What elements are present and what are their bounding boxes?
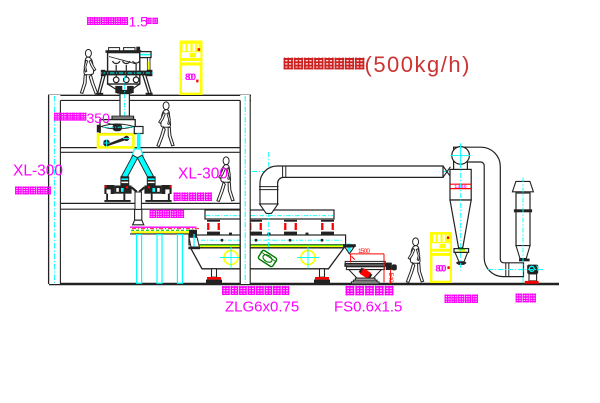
svg-text:350: 350	[87, 110, 111, 126]
svg-text:1.5: 1.5	[129, 14, 149, 30]
svg-text:ZLG6x0.75: ZLG6x0.75	[225, 299, 299, 316]
svg-text:540: 540	[387, 273, 394, 283]
svg-text:800: 800	[185, 72, 196, 83]
svg-text:1500: 1500	[358, 248, 370, 255]
svg-text:800: 800	[435, 264, 446, 275]
svg-text:XL-300: XL-300	[178, 166, 228, 183]
svg-text:XL-300: XL-300	[13, 163, 63, 180]
svg-text:(500kg/h): (500kg/h)	[365, 52, 471, 77]
svg-text:FS0.6x1.5: FS0.6x1.5	[334, 299, 402, 316]
